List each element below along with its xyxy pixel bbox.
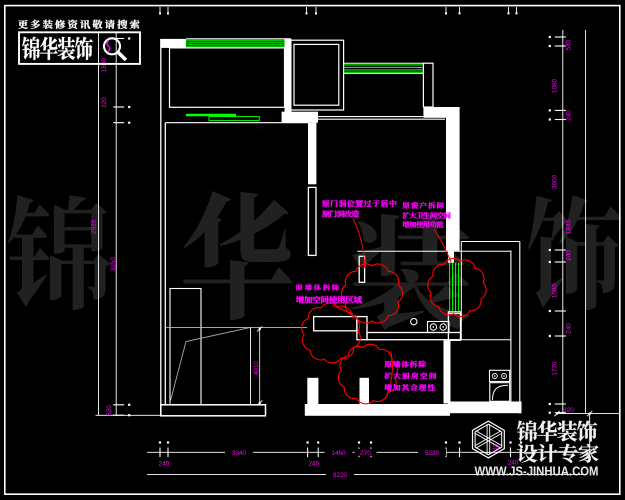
svg-text:4010: 4010 (253, 361, 260, 376)
svg-text:3340: 3340 (232, 450, 247, 457)
svg-text:5220: 5220 (425, 450, 440, 457)
svg-text:1840: 1840 (566, 219, 573, 234)
svg-text:270: 270 (360, 450, 371, 457)
svg-text:WWW.JS-JINHUA.COM: WWW.JS-JINHUA.COM (475, 464, 599, 478)
svg-text:8220: 8220 (333, 472, 348, 479)
svg-text:1080: 1080 (552, 283, 559, 298)
svg-text:240: 240 (308, 460, 319, 467)
svg-text:1080: 1080 (552, 78, 559, 93)
svg-text:240: 240 (159, 460, 170, 467)
svg-text:2920: 2920 (91, 219, 98, 234)
svg-text:320: 320 (101, 97, 108, 108)
svg-text:240: 240 (566, 110, 573, 121)
svg-text:3250: 3250 (110, 256, 117, 271)
svg-text:1770: 1770 (552, 361, 559, 376)
svg-text:540: 540 (566, 39, 573, 50)
svg-text:320: 320 (563, 407, 574, 414)
svg-text:320: 320 (106, 405, 113, 416)
svg-text:240: 240 (566, 250, 573, 261)
svg-text:1460: 1460 (331, 450, 346, 457)
svg-text:3600: 3600 (552, 174, 559, 189)
svg-text:240: 240 (566, 323, 573, 334)
